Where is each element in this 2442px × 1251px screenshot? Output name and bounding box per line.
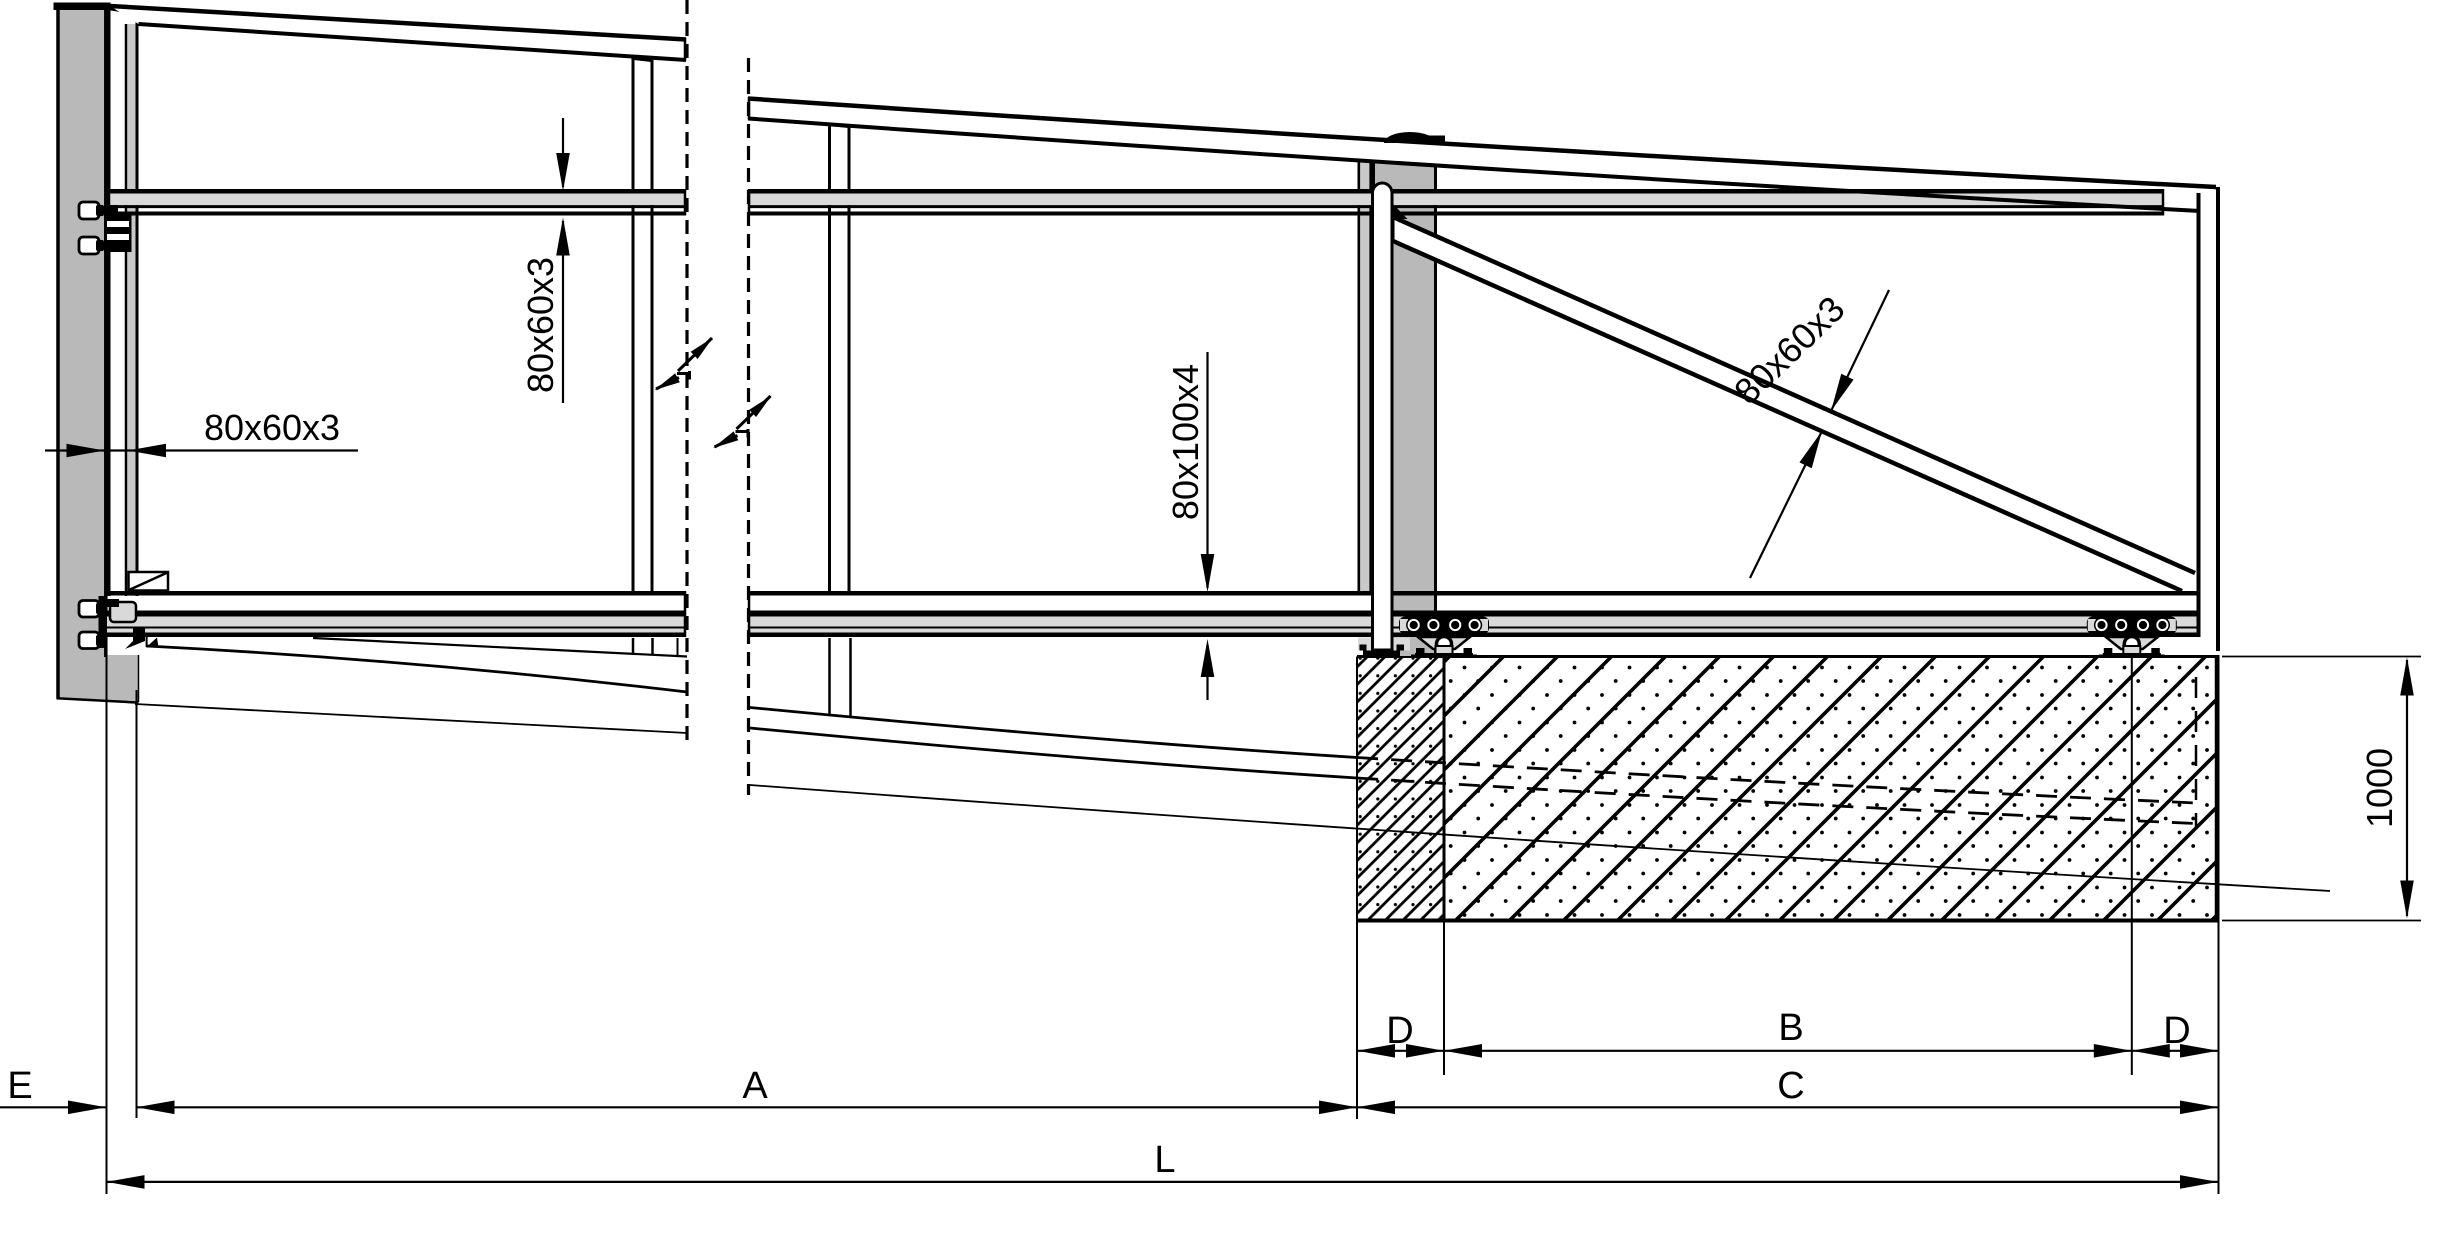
svg-text:L: L [1154, 1139, 1175, 1181]
svg-text:C: C [1777, 1065, 1804, 1107]
svg-text:A: A [742, 1065, 768, 1107]
svg-text:E: E [7, 1065, 32, 1107]
svg-text:80x60x3: 80x60x3 [204, 407, 340, 448]
svg-text:80x100x4: 80x100x4 [1165, 364, 1206, 520]
svg-text:D: D [2163, 1010, 2190, 1052]
svg-text:B: B [1778, 1007, 1803, 1049]
svg-text:80x60x3: 80x60x3 [520, 257, 561, 393]
svg-text:1000: 1000 [2359, 748, 2400, 828]
svg-text:D: D [1386, 1010, 1413, 1052]
